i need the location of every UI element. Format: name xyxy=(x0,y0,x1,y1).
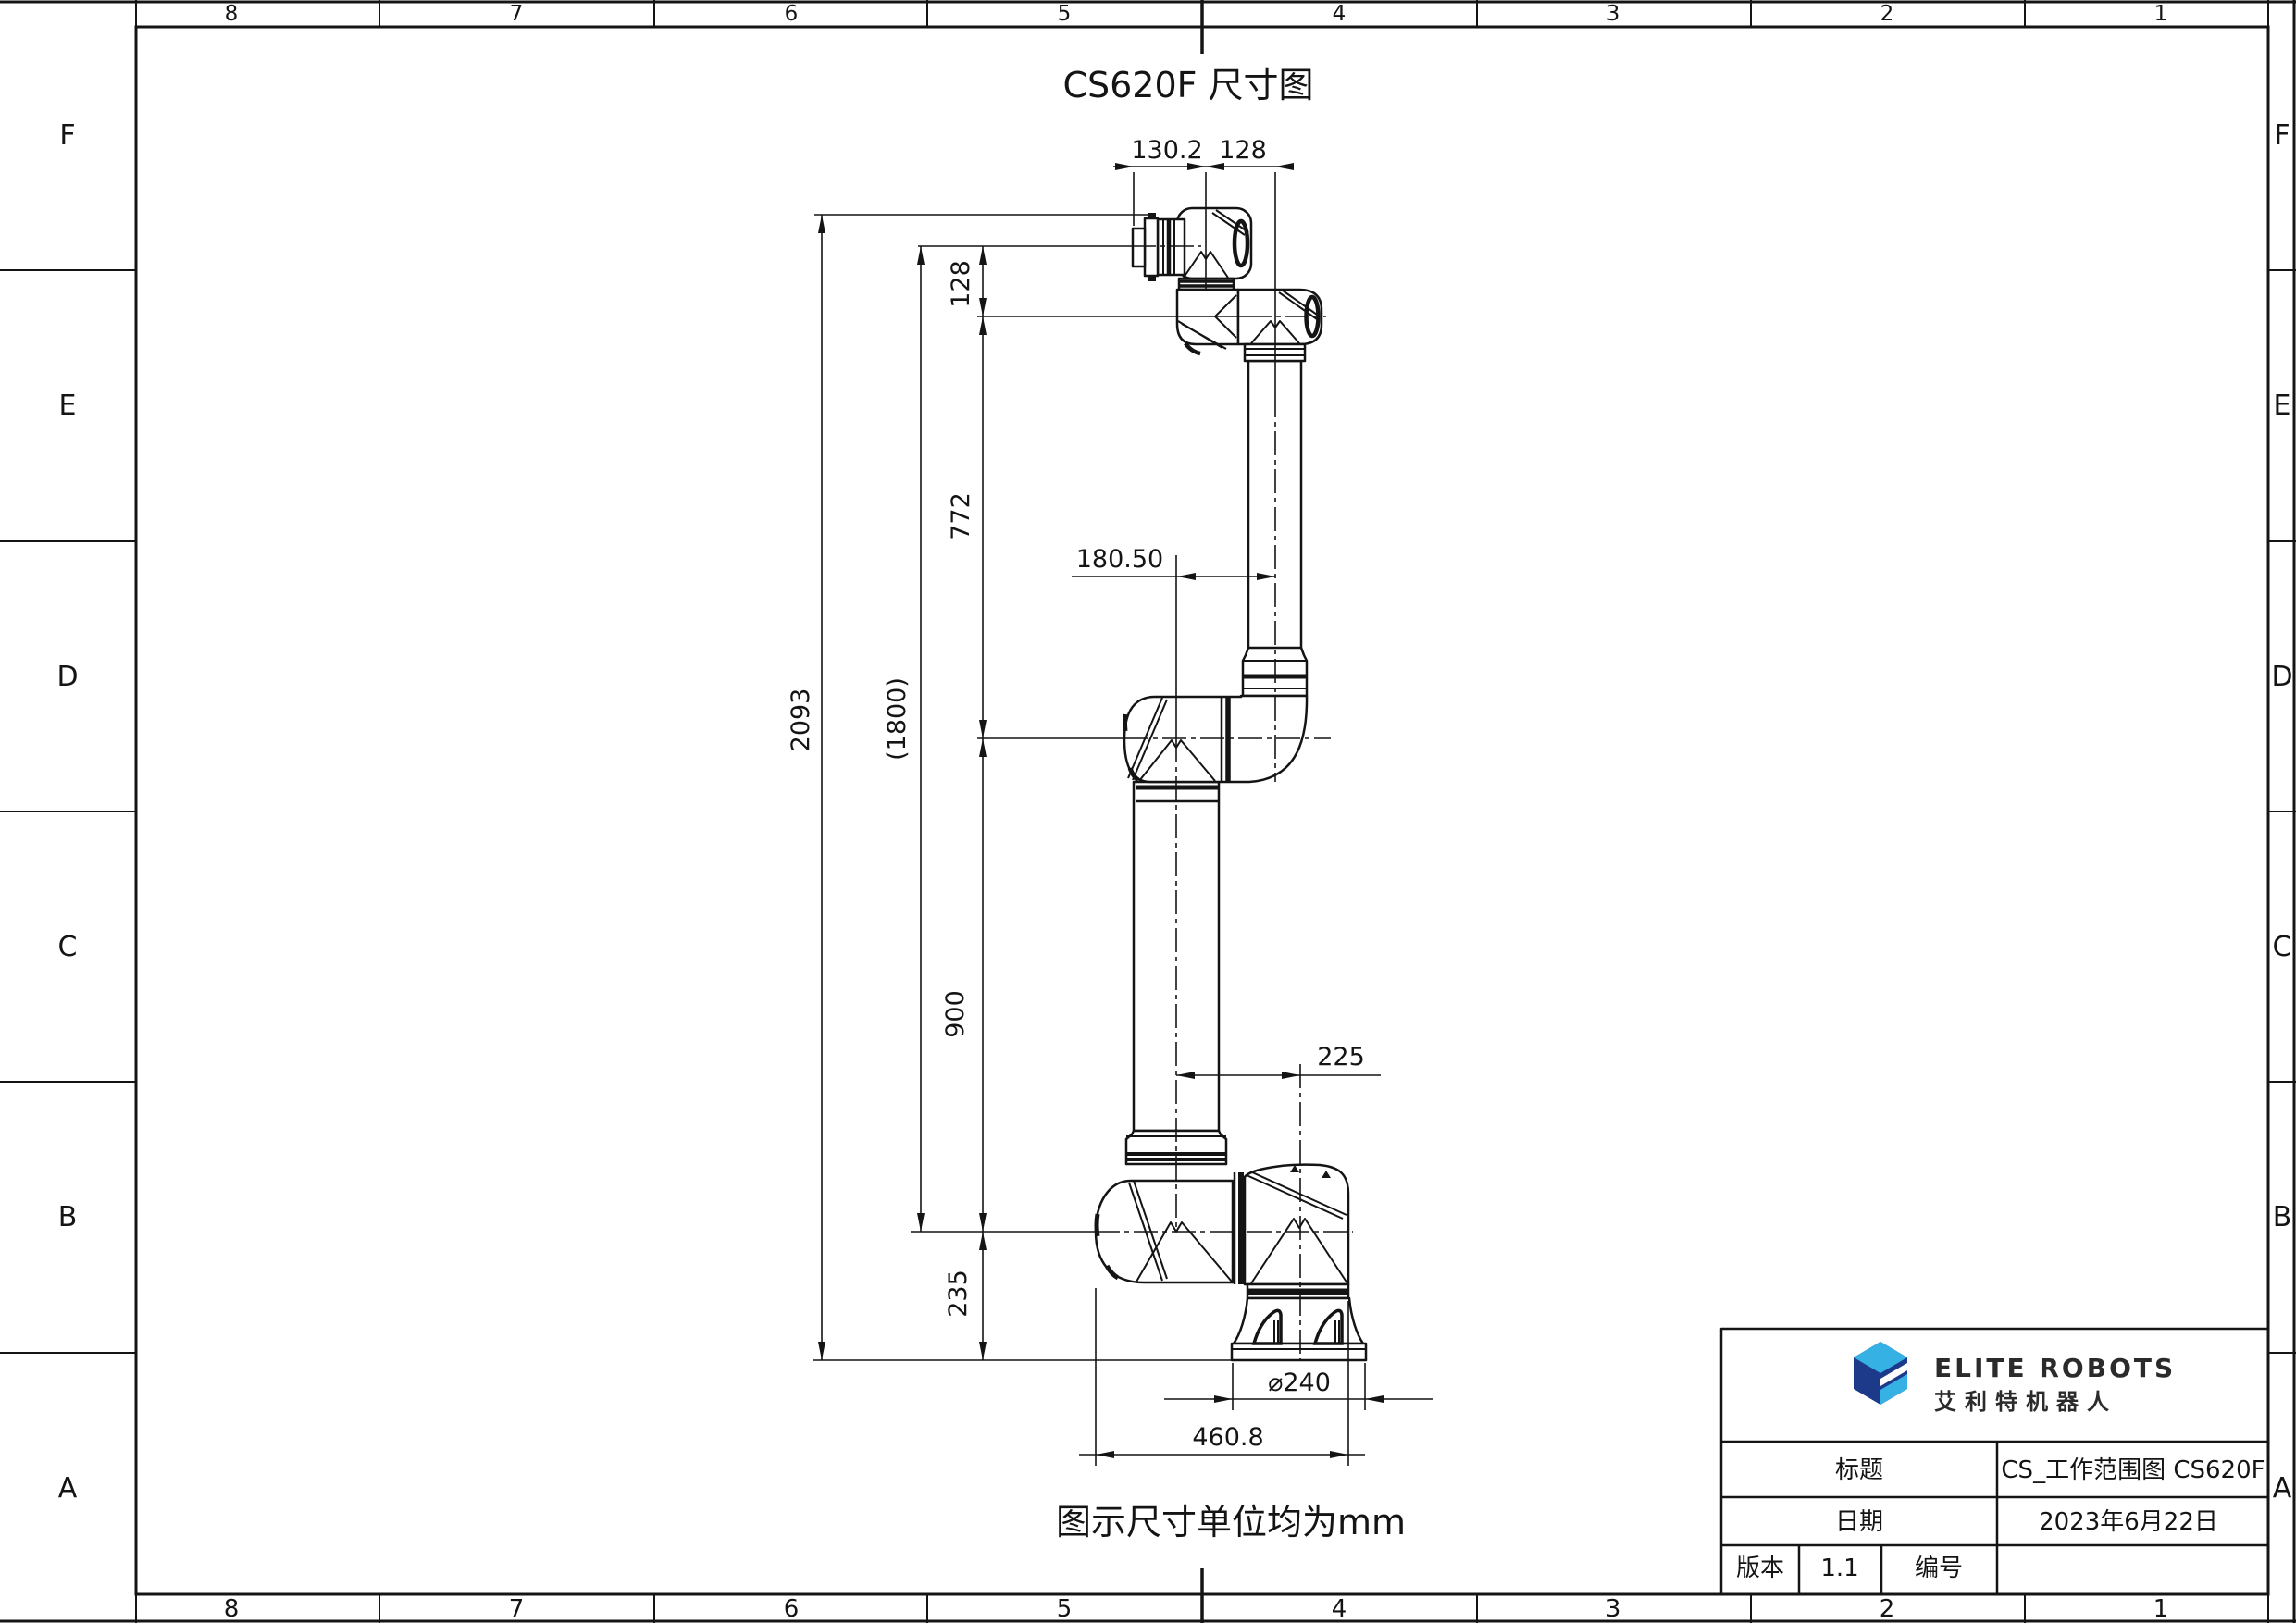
logo-text-cn: 艾利特机器人 xyxy=(1934,1389,2117,1415)
grid-row-label: E xyxy=(59,390,77,422)
title-label: 标题 xyxy=(1835,1456,1883,1484)
dim-225: 225 xyxy=(1317,1043,1365,1072)
wrist3-cylinder xyxy=(1158,219,1185,275)
base-foot xyxy=(1232,1344,1366,1360)
grid-row-label: C xyxy=(58,931,78,963)
flange-bolt xyxy=(1148,213,1156,219)
technical-drawing-canvas: 8 7 6 5 4 3 2 1 8 7 6 5 4 3 2 1 F E D C … xyxy=(0,0,2296,1623)
grid-row-label: E xyxy=(2274,390,2291,422)
robot-arm-drawing xyxy=(1096,208,1366,1360)
grid-row-label: B xyxy=(58,1201,78,1233)
number-label: 编号 xyxy=(1915,1555,1963,1582)
dim-1800: (1800) xyxy=(883,677,912,761)
grid-row-label: A xyxy=(58,1472,78,1505)
grid-row-label: F xyxy=(2274,119,2290,152)
dim-180-50: 180.50 xyxy=(1076,545,1163,574)
base-pedestal xyxy=(1234,1298,1363,1344)
version-label: 版本 xyxy=(1736,1555,1784,1582)
wrist3-housing xyxy=(1177,208,1251,279)
grid-row-label: D xyxy=(56,661,78,693)
dim-772: 772 xyxy=(947,492,975,540)
drawing-sheet: 8 7 6 5 4 3 2 1 8 7 6 5 4 3 2 1 F E D C … xyxy=(0,0,2296,1623)
dim-235: 235 xyxy=(944,1270,973,1318)
wrist-assembly xyxy=(1133,208,1322,361)
grid-col-label: 8 xyxy=(225,2,239,26)
grid-row-label: F xyxy=(59,119,75,152)
grid-col-label: 7 xyxy=(509,1595,525,1623)
elbow-cap-mark xyxy=(1125,714,1126,731)
units-note: 图示尺寸单位均为mm xyxy=(1056,1502,1406,1542)
grid-col-label: 2 xyxy=(1880,2,1894,26)
elbow-joint xyxy=(1124,648,1307,801)
grid-col-label: 1 xyxy=(2154,2,2168,26)
dim-128: 128 xyxy=(947,260,975,308)
version-value: 1.1 xyxy=(1820,1555,1858,1582)
dim-128-top: 128 xyxy=(1219,136,1267,165)
dim-240: ⌀240 xyxy=(1268,1369,1331,1397)
grid-col-label: 8 xyxy=(224,1595,240,1623)
elite-robots-logo: ELITE ROBOTS 艾利特机器人 xyxy=(1854,1342,2176,1415)
title-value: CS_工作范围图 CS620F xyxy=(2001,1456,2265,1484)
grid-row-label: D xyxy=(2271,661,2292,693)
grid-col-label: 3 xyxy=(1606,1595,1621,1623)
dim-2093: 2093 xyxy=(787,688,815,752)
grid-col-label: 3 xyxy=(1607,2,1620,26)
logo-text-en: ELITE ROBOTS xyxy=(1934,1353,2176,1383)
grid-col-label: 2 xyxy=(1880,1595,1895,1623)
grid-col-label: 6 xyxy=(785,2,799,26)
grid-col-label: 4 xyxy=(1332,1595,1347,1623)
flange-bolt xyxy=(1148,275,1156,281)
grid-col-label: 4 xyxy=(1333,2,1347,26)
date-value: 2023年6月22日 xyxy=(2039,1508,2218,1536)
grid-col-label: 7 xyxy=(510,2,524,26)
tool-flange-plate xyxy=(1145,218,1158,276)
grid-col-label: 6 xyxy=(784,1595,800,1623)
page-title: CS620F 尺寸图 xyxy=(1062,65,1313,105)
tool-flange xyxy=(1133,229,1145,266)
dim-130-2: 130.2 xyxy=(1131,136,1202,165)
grid-col-label: 5 xyxy=(1057,1595,1073,1623)
date-label: 日期 xyxy=(1835,1508,1883,1536)
grid-row-label: A xyxy=(2273,1472,2292,1505)
dim-460-8: 460.8 xyxy=(1192,1423,1263,1452)
shoulder-base-assembly xyxy=(1096,1131,1366,1360)
grid-row-label: B xyxy=(2273,1201,2292,1233)
dim-900: 900 xyxy=(941,990,970,1038)
grid-row-label: C xyxy=(2273,931,2292,963)
grid-col-label: 5 xyxy=(1058,2,1072,26)
shoulder-cap-mark xyxy=(1097,1214,1098,1236)
grid-col-label: 1 xyxy=(2153,1595,2169,1623)
title-block: ELITE ROBOTS 艾利特机器人 标题 CS_工作范围图 CS620F 日… xyxy=(1721,1329,2268,1594)
